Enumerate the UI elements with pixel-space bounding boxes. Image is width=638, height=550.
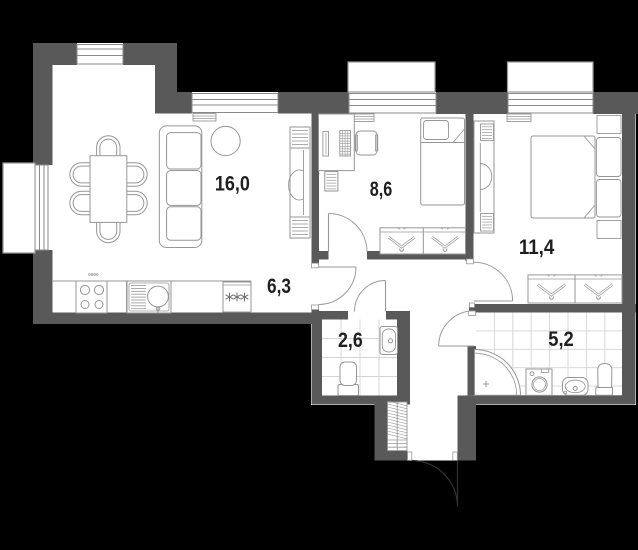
svg-text:11,4: 11,4 xyxy=(519,235,555,259)
svg-text:6,3: 6,3 xyxy=(267,274,291,298)
svg-text:8,6: 8,6 xyxy=(370,177,393,201)
svg-text:2,6: 2,6 xyxy=(338,328,363,352)
svg-text:5,2: 5,2 xyxy=(548,327,574,351)
svg-text:16,0: 16,0 xyxy=(215,172,250,196)
